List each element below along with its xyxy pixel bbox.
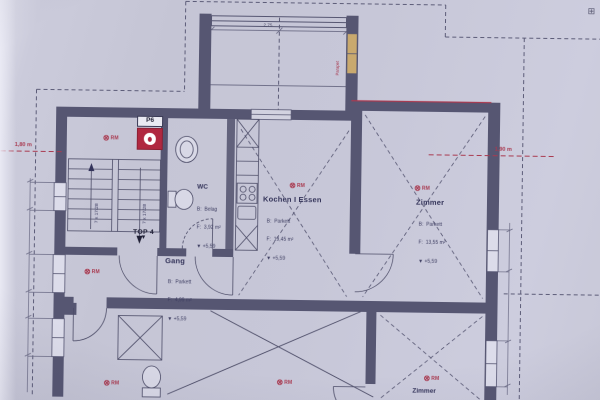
room-name-zimmer-sued: Zimmer — [412, 388, 436, 395]
kitchen-counter — [235, 119, 259, 250]
rm-circle-icon: ⊗ — [289, 182, 296, 190]
room-data-wc: B: Belag F: 3,92 m² ▼ +5,59 — [196, 194, 221, 264]
height-dim-right: 1,90 m — [495, 147, 512, 153]
rm-circle-icon: ⊗ — [414, 185, 421, 193]
room-name-wc: WC — [197, 184, 208, 191]
extinguisher-glyph-icon — [144, 133, 156, 145]
rm-marker-zimmer-sued: ⊗ RM — [423, 375, 439, 383]
rm-marker-bad: ⊗ RM — [103, 379, 119, 387]
floorplan-sheet: P6 ⊗ RM ⊗ RM ⊗ RM ⊗ RM ⊗ RM ⊗ RM ⊗ RM — [0, 0, 600, 400]
shaft-box — [118, 315, 163, 360]
rm-circle-icon: ⊗ — [103, 134, 110, 142]
rm-circle-icon: ⊗ — [103, 379, 110, 387]
stair-flight-label-right: 7 x 17/28 — [143, 180, 149, 224]
room-data-zimmer-nord: B: Parkett F: 13,55 m² ▼ +5,59 — [418, 209, 446, 279]
toilet-bottom — [142, 366, 160, 397]
balcony-width-dim: 2,75 — [263, 22, 272, 27]
rm-circle-icon: ⊗ — [84, 268, 91, 276]
rm-marker-vestibule: ⊗ RM — [84, 268, 100, 276]
floorplan-photo: P6 ⊗ RM ⊗ RM ⊗ RM ⊗ RM ⊗ RM ⊗ RM ⊗ RM — [0, 0, 600, 400]
room-name-kochen: Kochen I Essen — [263, 194, 322, 204]
rm-circle-icon: ⊗ — [423, 375, 430, 383]
survey-cross-icon: ⊞ — [588, 6, 596, 17]
rm-marker-kochen: ⊗ RM — [289, 182, 305, 190]
unit-entry-label: TOP 4 ▼ — [121, 229, 165, 242]
balcony-window-note: Parapet — [335, 35, 341, 75]
fire-extinguisher-icon — [137, 128, 163, 150]
room-data-gang: B: Parkett F: 4,99 m² ▼ +5,59 — [167, 266, 192, 336]
room-data-kochen: B: Parkett F: 19,45 m² ▼ +5,59 — [266, 206, 294, 276]
entry-arrow-icon: ▼ — [121, 236, 165, 242]
stair-flight-label-left: 7 x 17/28 — [95, 179, 101, 223]
rm-marker-stairs: ⊗ RM — [103, 134, 119, 142]
height-dim-left: 1,80 m — [15, 142, 32, 148]
extinguisher-callout: P6 — [137, 116, 163, 150]
room-name-zimmer-nord: Zimmer — [416, 198, 444, 207]
ceiling-lines — [167, 308, 374, 397]
rm-marker-zimmer-nord: ⊗ RM — [414, 185, 430, 193]
rm-circle-icon: ⊗ — [276, 379, 283, 387]
room-name-gang: Gang — [165, 256, 185, 265]
rm-marker-mitte: ⊗ RM — [276, 379, 292, 387]
extinguisher-tag: P6 — [137, 116, 163, 127]
wc-fixtures — [168, 136, 198, 209]
